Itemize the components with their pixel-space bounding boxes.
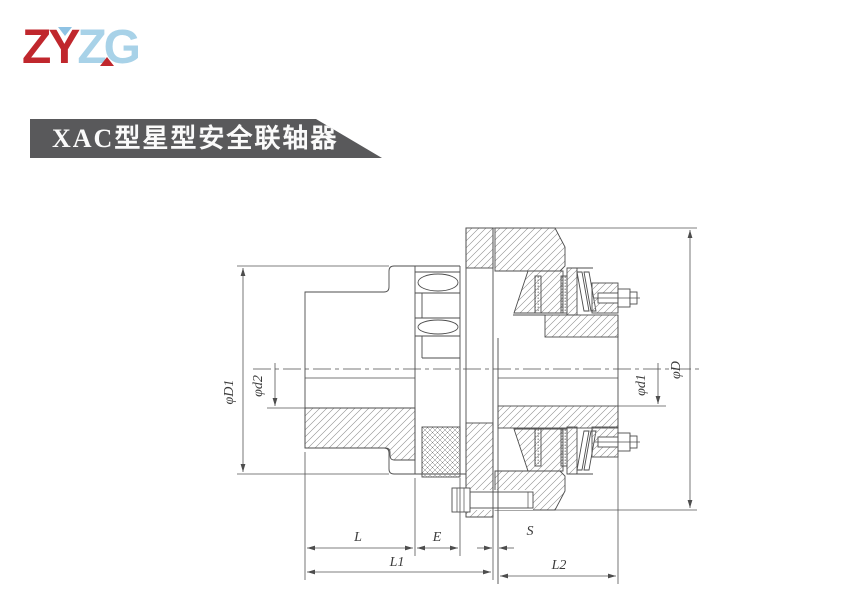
- right-assembly: [452, 228, 640, 584]
- socket-cap-screw: [452, 488, 533, 512]
- label-phiD1: φD1: [222, 380, 237, 405]
- label-L: L: [353, 530, 362, 545]
- label-phid2: φd2: [251, 375, 266, 397]
- label-L1: L1: [389, 555, 405, 570]
- left-hub: [305, 266, 415, 474]
- output-sleeve-bottom: [498, 406, 618, 428]
- label-S: S: [527, 524, 534, 539]
- label-E: E: [432, 530, 442, 545]
- housing-top: [495, 228, 565, 271]
- coupling-section-drawing: φD1 φd2 φd1 φD L E S L1 L2: [0, 0, 848, 604]
- label-phiD: φD: [669, 361, 684, 379]
- label-phid1: φd1: [634, 374, 649, 396]
- output-sleeve-top: [545, 315, 618, 337]
- label-L2: L2: [551, 558, 567, 573]
